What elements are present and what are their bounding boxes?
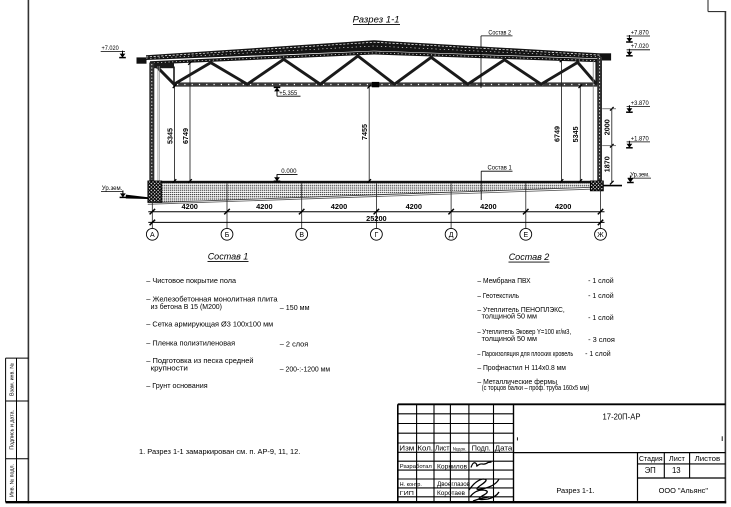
svg-text:Двоеглазов: Двоеглазов — [437, 481, 471, 488]
svg-text:– Сетка армирующая Ø3 100х100: – Сетка армирующая Ø3 100х100 мм — [146, 320, 273, 329]
svg-text:Кол.: Кол. — [417, 444, 433, 453]
svg-text:Д: Д — [449, 232, 454, 239]
svg-text:Подпись и дата.: Подпись и дата. — [10, 410, 16, 450]
svg-text:№док.: №док. — [453, 447, 467, 453]
svg-text:В: В — [299, 232, 304, 239]
svg-text:Е: Е — [523, 232, 528, 239]
svg-text:Взам. инв. №: Взам. инв. № — [10, 363, 16, 396]
svg-text:- 1 слой: - 1 слой — [588, 313, 614, 322]
svg-text:4200: 4200 — [406, 202, 422, 211]
svg-text:из бетона В 15 (М200): из бетона В 15 (М200) — [151, 302, 222, 311]
svg-text:ГИП: ГИП — [400, 491, 414, 497]
svg-text:- 1 слой: - 1 слой — [585, 349, 611, 358]
svg-text:– 2 слоя: – 2 слоя — [280, 339, 309, 348]
svg-text:– Грунт основания: – Грунт основания — [146, 381, 207, 390]
svg-text:– Пароизоляция для плоских кро: – Пароизоляция для плоских кровель — [477, 349, 573, 358]
svg-text:ООО "Альянс": ООО "Альянс" — [659, 486, 709, 495]
svg-text:Ур.зем.: Ур.зем. — [102, 185, 123, 192]
svg-text:– Геотекстиль: – Геотекстиль — [477, 291, 519, 300]
svg-text:4200: 4200 — [331, 202, 347, 211]
svg-text:- 3 слоя: - 3 слоя — [588, 335, 615, 344]
svg-text:Разработал: Разработал — [400, 464, 432, 470]
svg-text:Разрез 1-1: Разрез 1-1 — [352, 14, 399, 25]
svg-text:А: А — [150, 232, 155, 239]
svg-text:Ур.зем.: Ур.зем. — [630, 172, 650, 179]
svg-text:Коротаев: Коротаев — [437, 490, 466, 497]
svg-text:Изм: Изм — [399, 444, 414, 453]
svg-text:13: 13 — [672, 466, 681, 475]
svg-text:25200: 25200 — [366, 214, 387, 223]
svg-text:+7.020: +7.020 — [631, 43, 649, 50]
svg-text:- 1 слой: - 1 слой — [588, 276, 614, 285]
svg-text:ЭП: ЭП — [645, 466, 656, 475]
svg-text:+7.020: +7.020 — [102, 45, 120, 52]
svg-text:4200: 4200 — [256, 202, 272, 211]
svg-text:Лист: Лист — [435, 444, 450, 453]
svg-text:0.000: 0.000 — [281, 168, 297, 175]
svg-text:1870: 1870 — [602, 156, 611, 172]
svg-text:5345: 5345 — [571, 126, 580, 142]
svg-text:+1.870: +1.870 — [631, 135, 649, 142]
svg-text:- 1 слой: - 1 слой — [588, 291, 614, 300]
svg-text:Лист: Лист — [669, 454, 686, 463]
svg-text:Состав 2: Состав 2 — [488, 29, 511, 36]
svg-text:Б: Б — [225, 232, 230, 239]
svg-text:Стадия: Стадия — [639, 454, 663, 463]
svg-text:– 200-:-1200 мм: – 200-:-1200 мм — [280, 364, 330, 373]
svg-text:1. Разрез 1-1 замаркирован см.: 1. Разрез 1-1 замаркирован см. п. АР-9, … — [139, 447, 300, 456]
svg-text:4200: 4200 — [555, 202, 571, 211]
svg-text:Дата: Дата — [495, 444, 513, 453]
svg-text:Г: Г — [375, 232, 379, 239]
svg-text:Инв. № подл.: Инв. № подл. — [10, 464, 16, 497]
svg-text:6749: 6749 — [552, 126, 561, 142]
svg-text:Ж: Ж — [597, 232, 604, 239]
svg-text:Н. контр.: Н. контр. — [400, 482, 422, 488]
svg-text:5345: 5345 — [165, 128, 174, 144]
svg-text:4200: 4200 — [181, 202, 197, 211]
svg-text:Разрез 1-1.: Разрез 1-1. — [556, 486, 594, 495]
svg-text:толщиной 50 мм: толщиной 50 мм — [482, 334, 537, 343]
svg-text:– Мембрана ПВХ: – Мембрана ПВХ — [477, 276, 530, 285]
svg-text:Состав 1: Состав 1 — [208, 251, 249, 261]
svg-text:– 150 мм: – 150 мм — [280, 303, 310, 312]
svg-text:6749: 6749 — [181, 128, 190, 144]
svg-text:17-20П-АР: 17-20П-АР — [603, 413, 641, 422]
svg-text:(с торцов балки – проф. труба: (с торцов балки – проф. труба 160х5 мм) — [482, 383, 590, 392]
svg-text:– Пленка полиэтиленовая: – Пленка полиэтиленовая — [146, 339, 235, 348]
svg-text:– Профнастил Н 114х0.8 мм: – Профнастил Н 114х0.8 мм — [477, 363, 566, 372]
svg-text:Подп.: Подп. — [472, 444, 491, 453]
svg-text:+5.355: +5.355 — [279, 90, 297, 97]
svg-text:– Чистовое покрытие пола: – Чистовое покрытие пола — [146, 276, 236, 285]
svg-text:+7.870: +7.870 — [631, 29, 649, 36]
svg-text:Состав 1: Состав 1 — [488, 165, 512, 172]
svg-text:крупности: крупности — [151, 364, 188, 373]
svg-text:Корнилов: Корнилов — [437, 463, 468, 470]
svg-text:2000: 2000 — [602, 119, 611, 135]
svg-text:толщиной 50 мм: толщиной 50 мм — [482, 312, 537, 321]
svg-text:Листов: Листов — [695, 454, 721, 463]
svg-text:7455: 7455 — [360, 124, 369, 140]
svg-text:4200: 4200 — [480, 202, 496, 211]
svg-text:+3.870: +3.870 — [631, 100, 649, 107]
svg-text:Состав 2: Состав 2 — [509, 252, 550, 262]
